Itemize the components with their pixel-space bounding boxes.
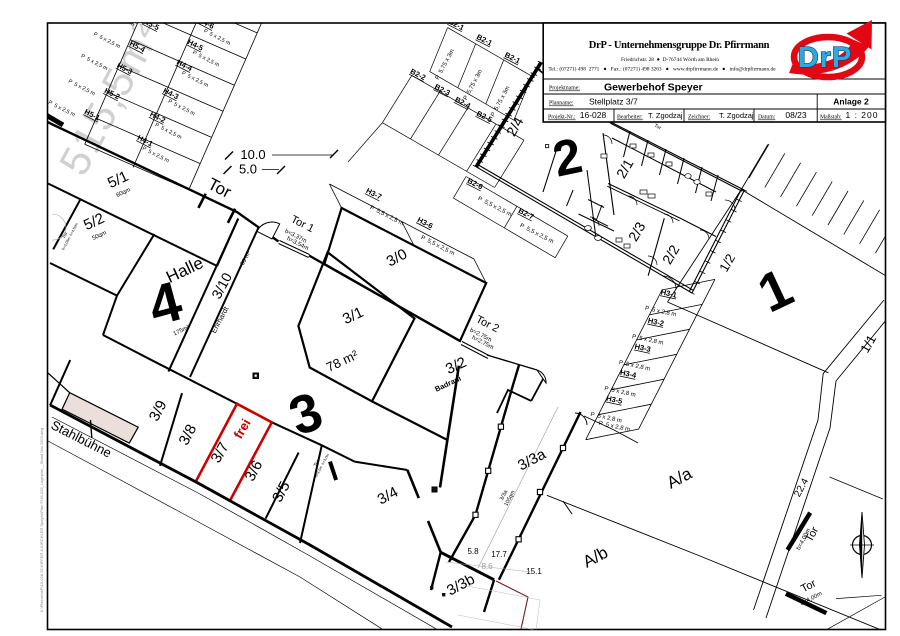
svg-text:DrP: DrP	[798, 42, 853, 74]
svg-text:10.0: 10.0	[240, 147, 265, 162]
svg-text:Maßstab:: Maßstab:	[820, 114, 842, 121]
svg-text:K:\Plaene\drP\16-028 SCHIFFER: K:\Plaene\drP\16-028 SCHIFFER & KIRCHLER…	[39, 428, 44, 612]
svg-text:17.7: 17.7	[491, 550, 507, 559]
svg-text:1 : 200: 1 : 200	[846, 110, 879, 120]
svg-text:Datum:: Datum:	[758, 115, 776, 121]
svg-text:16-028: 16-028	[580, 110, 607, 120]
svg-text:5.8: 5.8	[467, 547, 479, 556]
svg-text:08/23: 08/23	[785, 110, 807, 120]
svg-text:Planname:: Planname:	[549, 101, 574, 107]
svg-text:Projekt-Nr.:: Projekt-Nr.:	[548, 115, 576, 121]
svg-text:Stellplatz 3/7: Stellplatz 3/7	[589, 97, 638, 107]
svg-text:Gewerbehof Speyer: Gewerbehof Speyer	[604, 82, 703, 94]
svg-text:Friedrichstr. 28 ● D-76744 W: Friedrichstr. 28 ● D-76744 Wörth am Rhei…	[621, 57, 719, 63]
svg-text:T. Zgodzaj: T. Zgodzaj	[648, 111, 683, 120]
svg-text:Zeichner:: Zeichner:	[688, 115, 711, 121]
svg-text:5.0: 5.0	[239, 162, 257, 177]
svg-text:15.1: 15.1	[526, 567, 542, 576]
svg-text:T. Zgodzaj: T. Zgodzaj	[719, 111, 754, 120]
svg-text:Anlage 2: Anlage 2	[833, 97, 869, 107]
svg-text:Bearbeiter:: Bearbeiter:	[617, 115, 643, 121]
svg-text:Projektname:: Projektname:	[549, 86, 580, 92]
svg-text:Tel.: (07271) 498 2771 ●: Tel.: (07271) 498 2771 ● Fax.: (07271) 4…	[548, 66, 776, 73]
svg-text:DrP - Unternehmensgruppe Dr. P: DrP - Unternehmensgruppe Dr. Pfirrmann	[589, 40, 770, 51]
